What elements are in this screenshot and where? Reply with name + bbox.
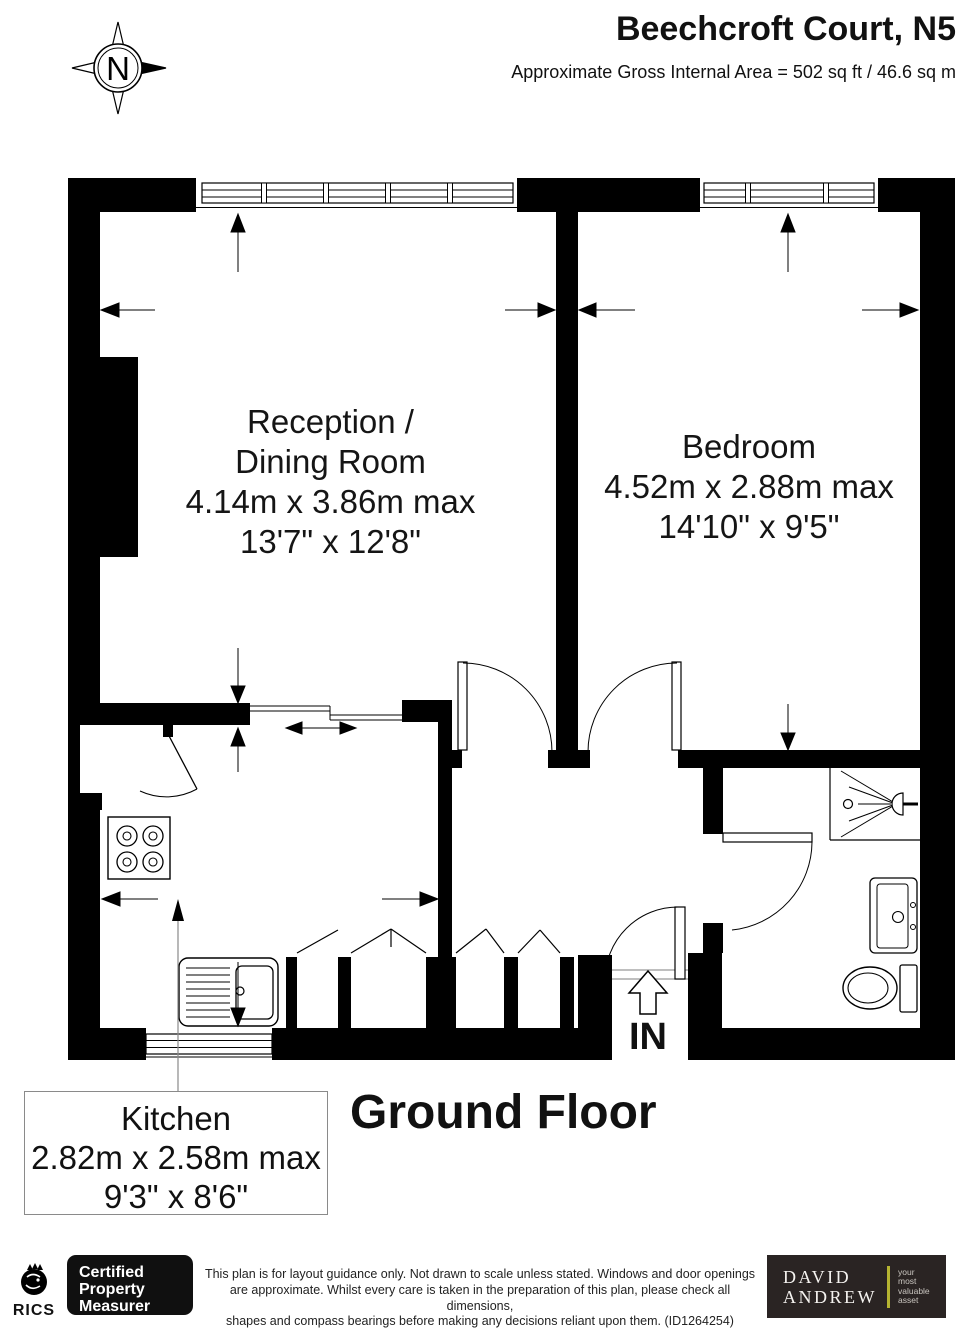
disclaimer-text: This plan is for layout guidance only. N… bbox=[200, 1267, 760, 1330]
rics-lion-icon bbox=[12, 1262, 56, 1296]
bedroom-dims-metric: 4.52m x 2.88m max bbox=[570, 467, 928, 507]
brand-tagline: your most valuable asset bbox=[898, 1268, 930, 1306]
basin-icon bbox=[870, 878, 917, 953]
brand-name: DAVID ANDREW bbox=[783, 1267, 877, 1307]
sink-icon bbox=[179, 958, 278, 1026]
dimension-arrows bbox=[101, 214, 918, 1026]
bedroom-dims-imperial: 14'10" x 9'5" bbox=[570, 507, 928, 547]
brand-name-line2: ANDREW bbox=[783, 1287, 877, 1307]
kitchen-label: Kitchen 2.82m x 2.58m max 9'3" x 8'6" bbox=[24, 1091, 328, 1215]
compass-north-label: N bbox=[106, 50, 130, 87]
badge-line1: Certified bbox=[79, 1264, 193, 1281]
badge-line2: Property bbox=[79, 1281, 193, 1298]
reception-dims-metric: 4.14m x 3.86m max bbox=[158, 482, 503, 522]
floorplan-page: N Beechcroft Court, N5 Approximate Gross… bbox=[0, 0, 980, 1342]
rics-logo: RICS bbox=[8, 1262, 60, 1320]
door-bedroom bbox=[588, 662, 681, 752]
entrance-label: IN bbox=[606, 1016, 690, 1059]
hob-icon bbox=[108, 817, 170, 879]
brand-tagline-line4: asset bbox=[898, 1296, 930, 1306]
kitchen-dims-imperial: 9'3" x 8'6" bbox=[25, 1177, 327, 1216]
door-reception bbox=[458, 662, 552, 752]
brand-accent-bar bbox=[887, 1266, 890, 1308]
window-kitchen bbox=[142, 1028, 276, 1060]
door-kitchen bbox=[140, 734, 197, 797]
disclaimer-line1: This plan is for layout guidance only. N… bbox=[200, 1267, 760, 1283]
floor-title: Ground Floor bbox=[350, 1085, 657, 1140]
toilet-icon bbox=[843, 965, 917, 1012]
kitchen-name: Kitchen bbox=[25, 1099, 327, 1138]
door-bathroom bbox=[723, 833, 812, 930]
disclaimer-line3: shapes and compass bearings before makin… bbox=[200, 1314, 760, 1330]
window-reception bbox=[196, 178, 520, 212]
bedroom-name: Bedroom bbox=[570, 427, 928, 467]
badge-line3: Measurer bbox=[79, 1298, 193, 1315]
closet-doors bbox=[297, 929, 560, 953]
reception-dims-imperial: 13'7" x 12'8" bbox=[158, 522, 503, 562]
reception-name-line2: Dining Room bbox=[158, 442, 503, 482]
shower-icon bbox=[830, 768, 920, 840]
compass-icon: N bbox=[62, 10, 174, 124]
door-front bbox=[605, 907, 688, 980]
reception-label: Reception / Dining Room 4.14m x 3.86m ma… bbox=[158, 402, 503, 562]
bedroom-label: Bedroom 4.52m x 2.88m max 14'10" x 9'5" bbox=[570, 427, 928, 547]
kitchen-dims-metric: 2.82m x 2.58m max bbox=[25, 1138, 327, 1177]
serving-hatch bbox=[250, 706, 402, 720]
page-title: Beechcroft Court, N5 bbox=[616, 10, 956, 49]
david-andrew-logo: DAVID ANDREW your most valuable asset bbox=[767, 1255, 946, 1318]
page-subtitle: Approximate Gross Internal Area = 502 sq… bbox=[511, 62, 956, 83]
brand-name-line1: DAVID bbox=[783, 1267, 877, 1287]
reception-name-line1: Reception / bbox=[158, 402, 503, 442]
entry-arrow-icon bbox=[629, 971, 667, 1014]
disclaimer-line2: are approximate. Whilst every care is ta… bbox=[200, 1283, 760, 1315]
certified-property-measurer-badge: Certified Property Measurer bbox=[67, 1255, 193, 1315]
rics-label: RICS bbox=[8, 1302, 60, 1320]
window-bedroom bbox=[696, 178, 880, 212]
